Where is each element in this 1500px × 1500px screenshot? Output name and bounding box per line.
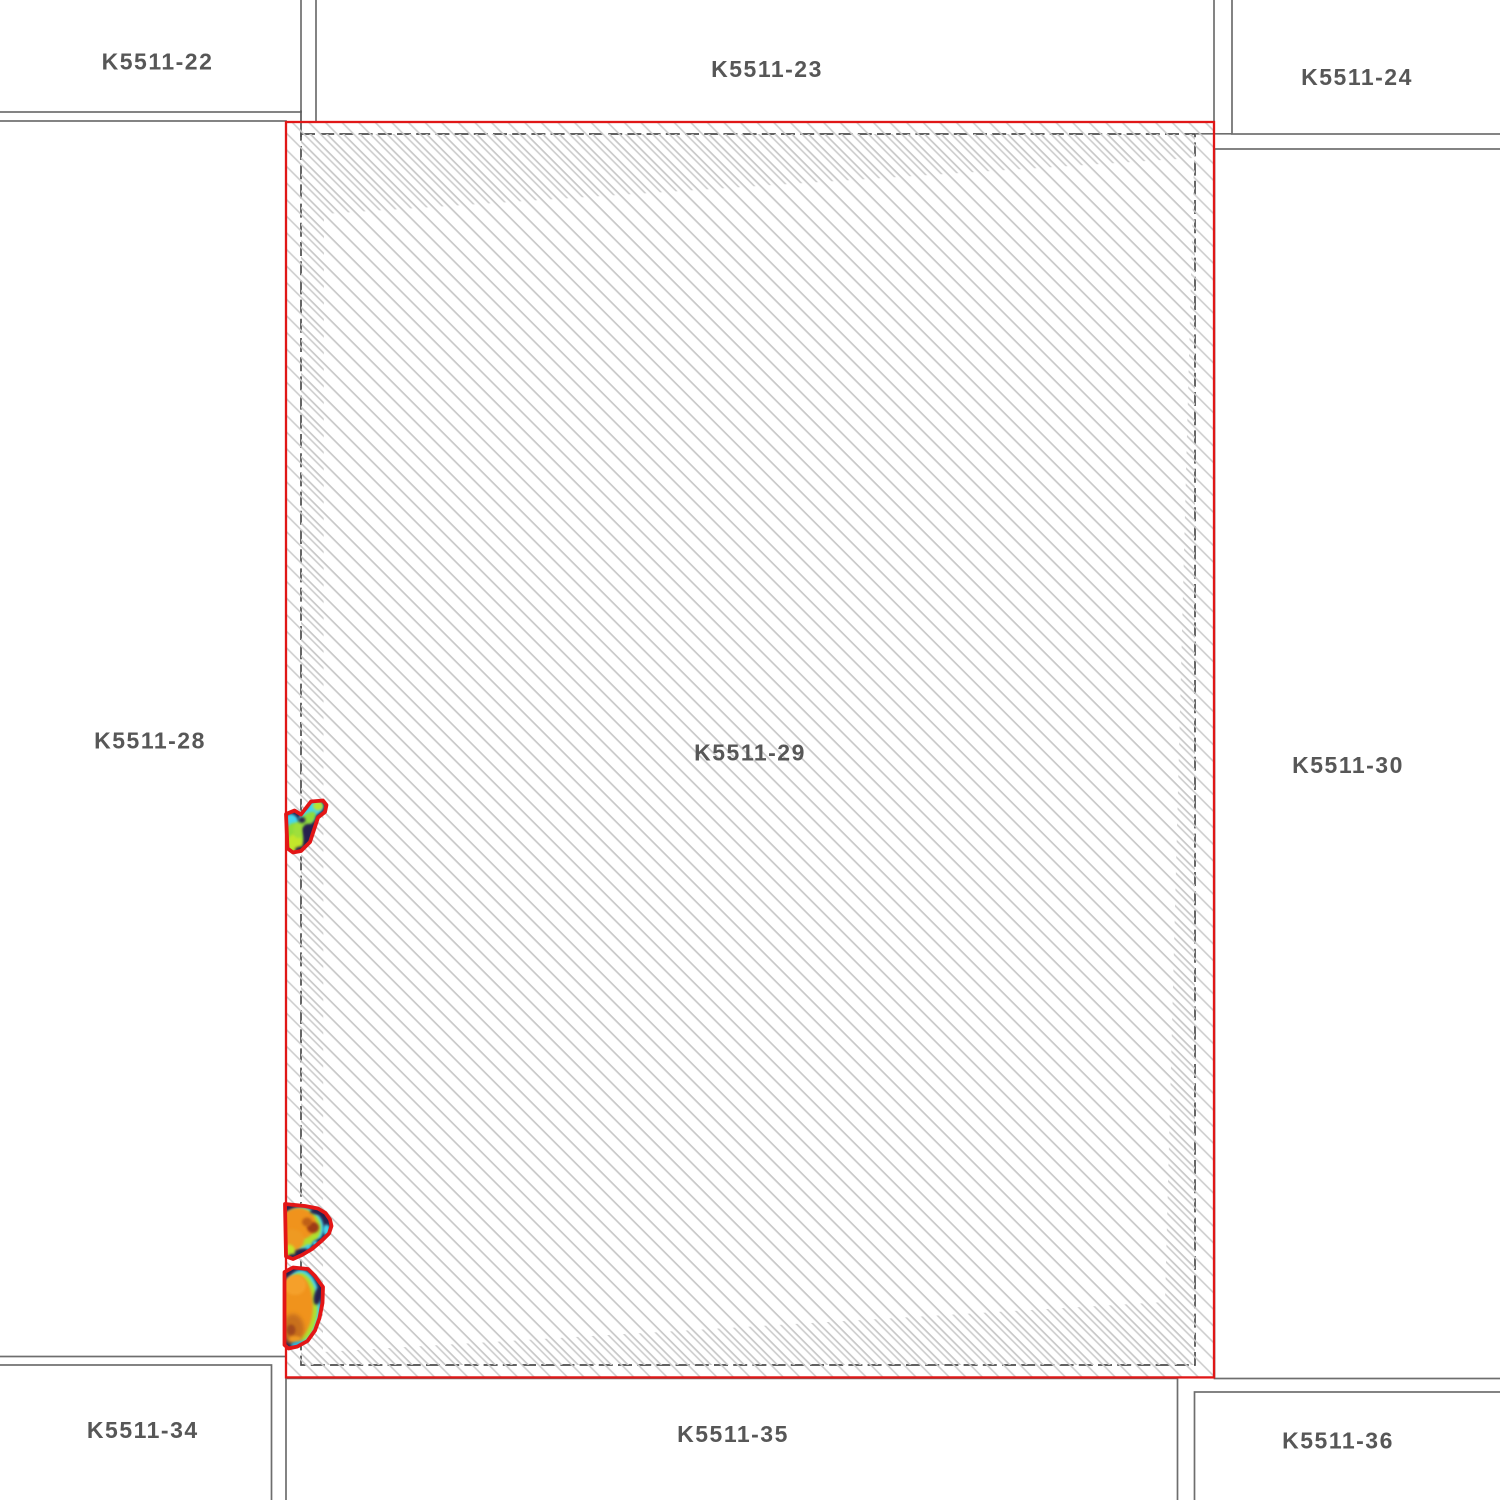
svg-text:K5511-36: K5511-36 <box>1282 1427 1394 1453</box>
svg-text:K5511-29: K5511-29 <box>694 740 806 766</box>
svg-text:K5511-24: K5511-24 <box>1301 64 1413 90</box>
svg-text:K5511-30: K5511-30 <box>1292 752 1404 778</box>
svg-text:K5511-34: K5511-34 <box>87 1417 199 1443</box>
svg-text:K5511-23: K5511-23 <box>711 56 823 82</box>
svg-text:K5511-22: K5511-22 <box>102 49 214 75</box>
svg-text:K5511-28: K5511-28 <box>94 727 206 753</box>
svg-text:K5511-35: K5511-35 <box>677 1421 789 1447</box>
